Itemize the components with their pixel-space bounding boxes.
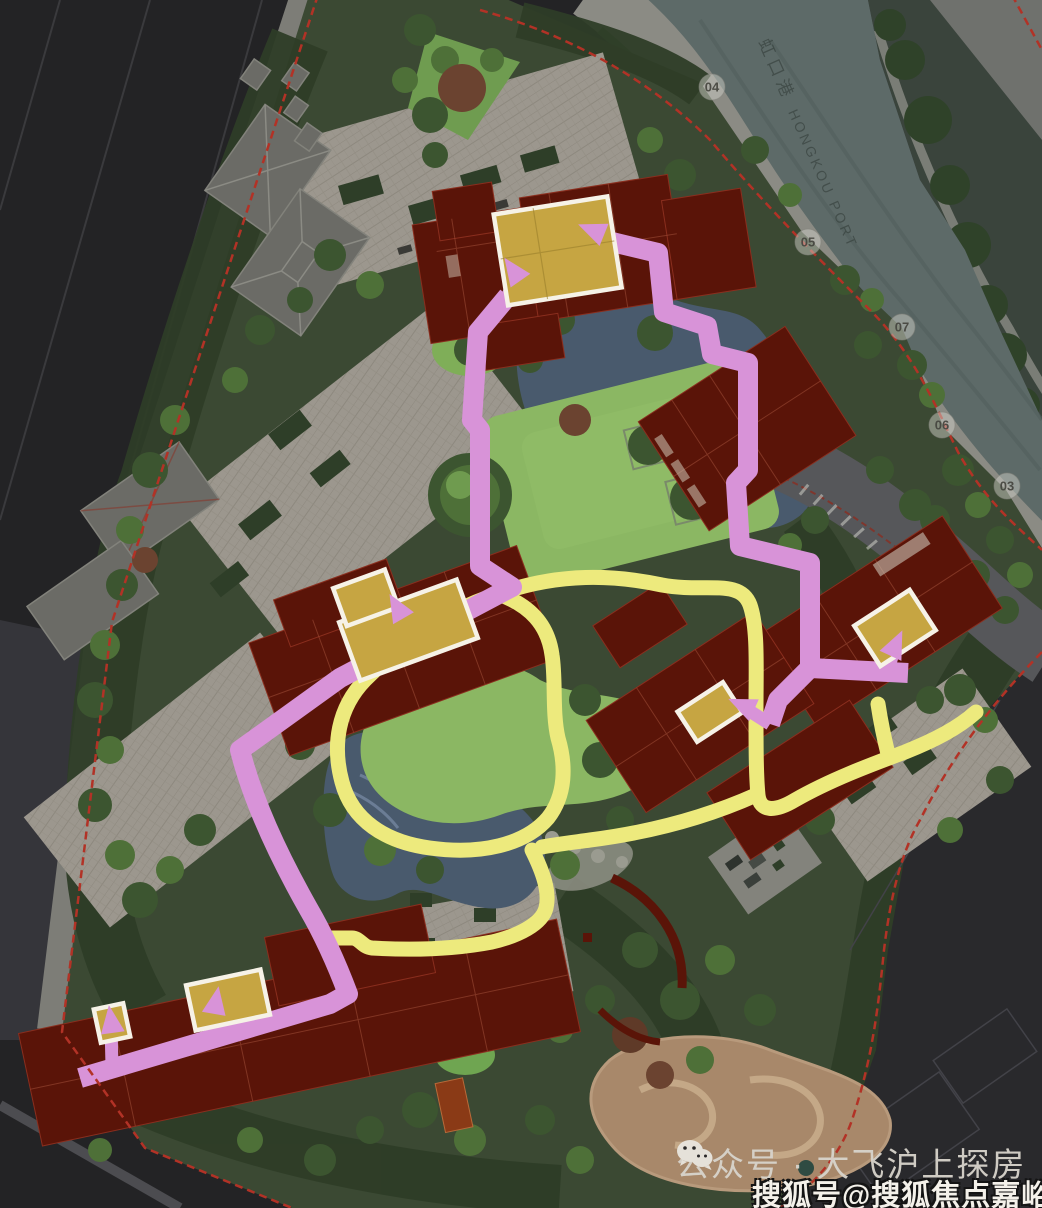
site-plan-screenshot: 虹口港 HONGKOU PORT — [0, 0, 1042, 1208]
site-marker-04: 04 — [699, 74, 725, 100]
site-plan-map: 虹口港 HONGKOU PORT — [0, 0, 1042, 1208]
svg-text:07: 07 — [895, 320, 909, 335]
watermark-sohu: 搜狐号@搜狐焦点嘉峪关站 — [752, 1172, 1042, 1208]
watermark-sohu-label: 搜狐号@搜狐焦点嘉峪关站 — [752, 1180, 1042, 1208]
svg-text:03: 03 — [1000, 479, 1014, 494]
site-marker-03: 03 — [994, 473, 1020, 499]
svg-text:04: 04 — [705, 80, 720, 95]
site-marker-06: 06 — [929, 412, 955, 438]
lobby-top — [494, 196, 622, 305]
svg-text:05: 05 — [801, 235, 815, 250]
red-kiosk — [583, 933, 592, 942]
wechat-icon — [676, 1138, 714, 1172]
site-marker-07: 07 — [889, 314, 915, 340]
site-marker-05: 05 — [795, 229, 821, 255]
svg-text:06: 06 — [935, 418, 949, 433]
